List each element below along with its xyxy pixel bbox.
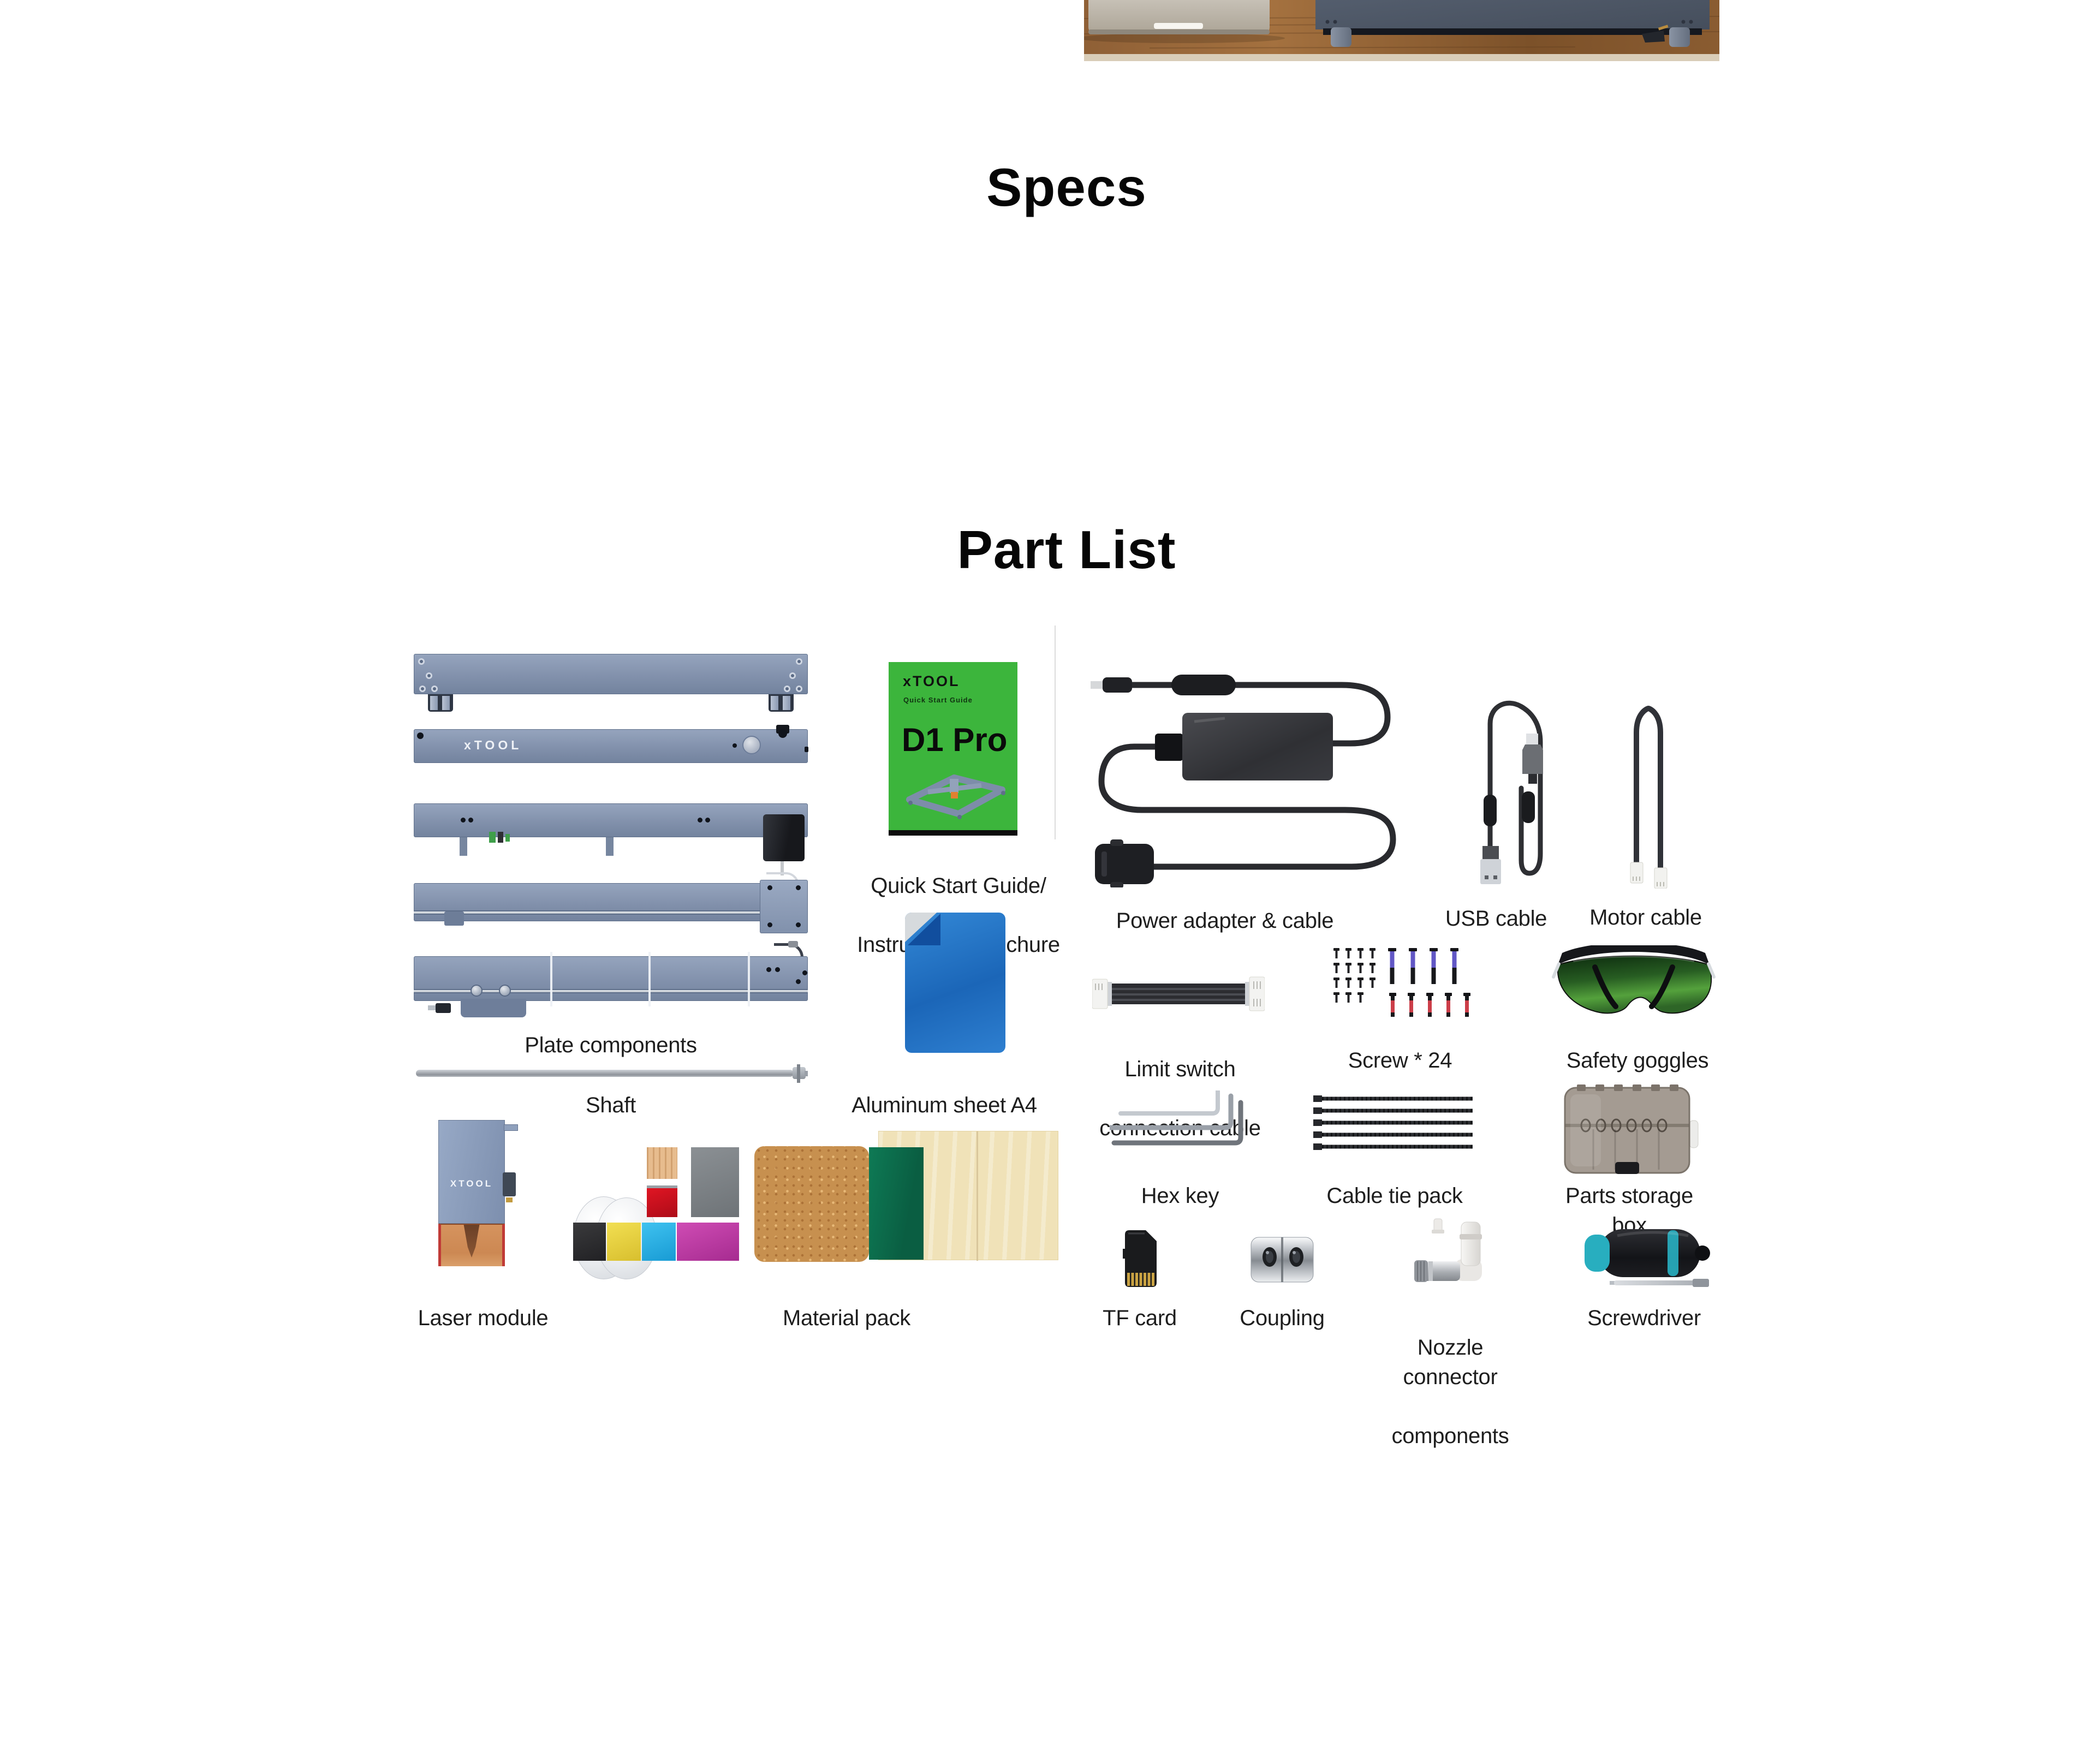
plate-4-image [414,880,808,937]
ac-inlet [1155,734,1183,761]
cable-tie-pack-image [1313,1094,1475,1158]
shaft-label: Shaft [414,1090,808,1120]
laptop [1088,0,1270,34]
cable-ties [1313,1095,1473,1150]
nozzle-connector-label: Nozzle connector components [1368,1303,1532,1480]
material-pack-label: Material pack [765,1303,928,1333]
plate-5-knob [436,1003,451,1013]
red-card [647,1185,677,1217]
usb-ferrite-1 [1484,795,1497,826]
adapter-brick [1182,713,1333,780]
power-adapter-label: Power adapter & cable [1094,906,1356,935]
power-adapter-image [1089,653,1406,890]
gray-slate [691,1147,739,1217]
hero-photo [1084,0,1719,61]
motor-cable-label: Motor cable [1564,903,1728,932]
yellow-card [607,1223,641,1261]
cyan-card [642,1223,676,1261]
tf-card-label: TF card [1058,1303,1222,1333]
aluminum-sheet-image [905,913,1005,1053]
plate-2-image: xTOOL [414,729,808,765]
screwdriver-handle [1585,1229,1710,1277]
hex-key-label: Hex key [1098,1181,1262,1211]
limit-switch-board [489,832,496,843]
cable-tie-pack-label: Cable tie pack [1313,1181,1476,1211]
plate-components-label: Plate components [414,1030,808,1060]
parts-storage-box-image [1563,1082,1699,1179]
screwdriver-image [1585,1226,1719,1294]
black-card [573,1223,606,1261]
plate-5-image [414,956,808,1025]
laptop-shadow [1084,33,1285,43]
tf-card-image [1121,1226,1161,1293]
plate-3-image [414,803,808,877]
goggles-lens [1558,956,1711,1014]
plate-5-clamp [461,999,526,1017]
book-machine-illustration [893,747,1013,829]
nozzle-connector-image [1407,1218,1496,1292]
screws-image [1333,948,1484,1032]
screwdriver-label: Screwdriver [1562,1303,1726,1333]
shaft-image [416,1066,808,1081]
hero-photo-graphic [1084,0,1719,61]
laser-module-label: Laser module [401,1303,565,1333]
motor-cable-image [1628,694,1669,891]
screwdriver-shaft [1610,1279,1709,1287]
column-divider [1055,625,1056,839]
cork-sheet [754,1146,869,1262]
wood-square [647,1147,677,1179]
laser-module-image: XTOOL [438,1120,520,1267]
magenta-card [677,1223,739,1261]
specs-title: Specs [414,157,1719,217]
usb-cable-label: USB cable [1414,904,1578,933]
dc-plug [1103,677,1132,693]
usb-a-connector [1480,846,1501,884]
coupling-label: Coupling [1200,1303,1364,1333]
safety-goggles-image [1549,945,1718,1031]
connector-left [1092,979,1107,1009]
box-latch [1615,1162,1639,1174]
safety-goggles-label: Safety goggles [1556,1046,1719,1075]
ferrite-bead [1171,675,1236,695]
hex-key-image [1110,1090,1244,1167]
usb-cable-image [1469,692,1551,891]
part-list-title: Part List [414,520,1719,580]
material-pack-image [573,1131,1059,1262]
plate-logo-text: xTOOL [464,738,522,753]
ac-plug [1095,839,1154,887]
book-subtitle-text: Quick Start Guide [903,696,973,704]
usb-ferrite-2 [1522,791,1535,823]
book-brand-text: xTOOL [903,673,960,690]
plate-knob [742,736,761,754]
book-bottom-edge [889,830,1017,836]
coupling-image [1246,1233,1319,1289]
quick-start-guide-image: xTOOL Quick Start Guide D1 Pro [889,662,1017,836]
stepper-motor [763,814,805,861]
box-clip [1689,1121,1698,1148]
plate-1-image [414,654,808,714]
aluminum-sheet-label: Aluminum sheet A4 [835,1090,1053,1120]
screws-label: Screw * 24 [1318,1046,1482,1075]
laser-module-logo-text: XTOOL [439,1178,504,1189]
desk-front-edge [1084,54,1719,61]
nozzle-tube [1461,1222,1480,1266]
module-connector [503,1172,516,1196]
limit-switch-cable-image [1092,967,1265,1024]
green-felt-sheet [869,1147,924,1260]
page: Specs Part List xTOOL [0,0,2096,1764]
tf-card-pins [1127,1273,1154,1286]
